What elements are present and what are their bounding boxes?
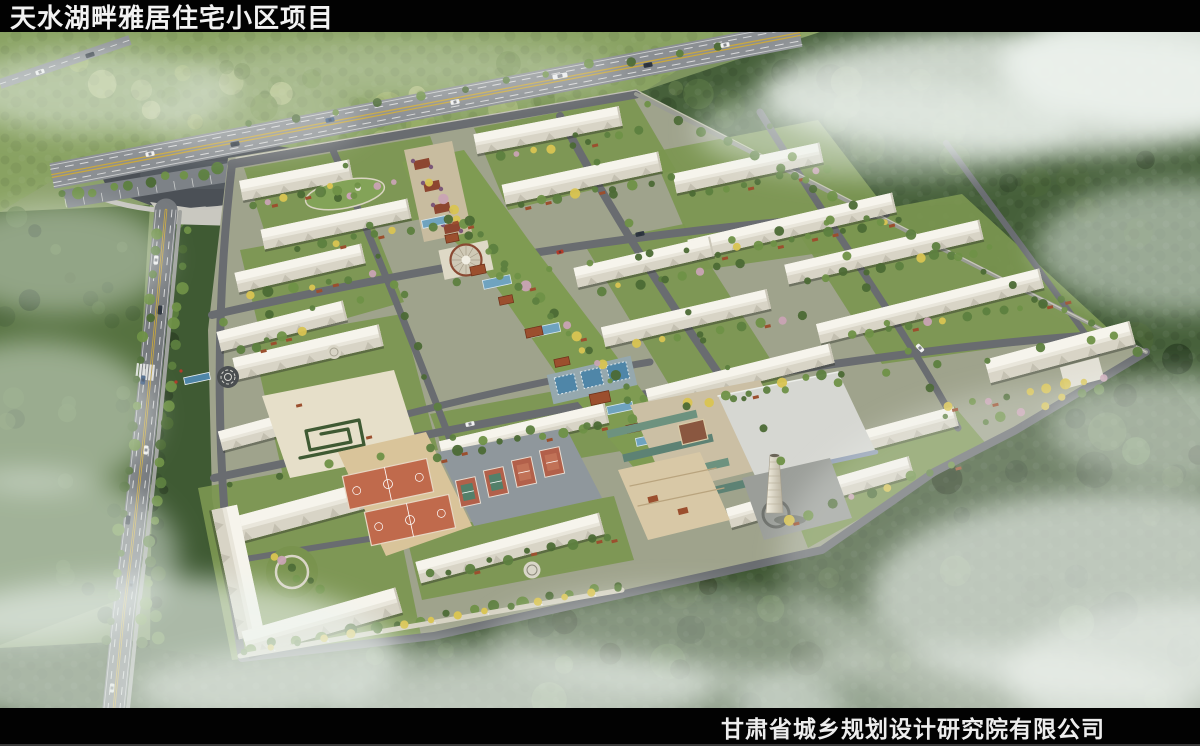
title-bar: 天水湖畔雅居住宅小区项目 bbox=[0, 0, 1200, 32]
project-title: 天水湖畔雅居住宅小区项目 bbox=[10, 0, 334, 35]
credit-bar: 甘肃省城乡规划设计研究院有限公司 bbox=[0, 708, 1200, 746]
masterplan-rendering bbox=[0, 32, 1200, 708]
aerial-rendering bbox=[0, 32, 1200, 708]
company-name: 甘肃省城乡规划设计研究院有限公司 bbox=[721, 710, 1105, 744]
poster-frame: 天水湖畔雅居住宅小区项目 甘肃省城乡规划设计研究院有限公司 bbox=[0, 0, 1200, 746]
